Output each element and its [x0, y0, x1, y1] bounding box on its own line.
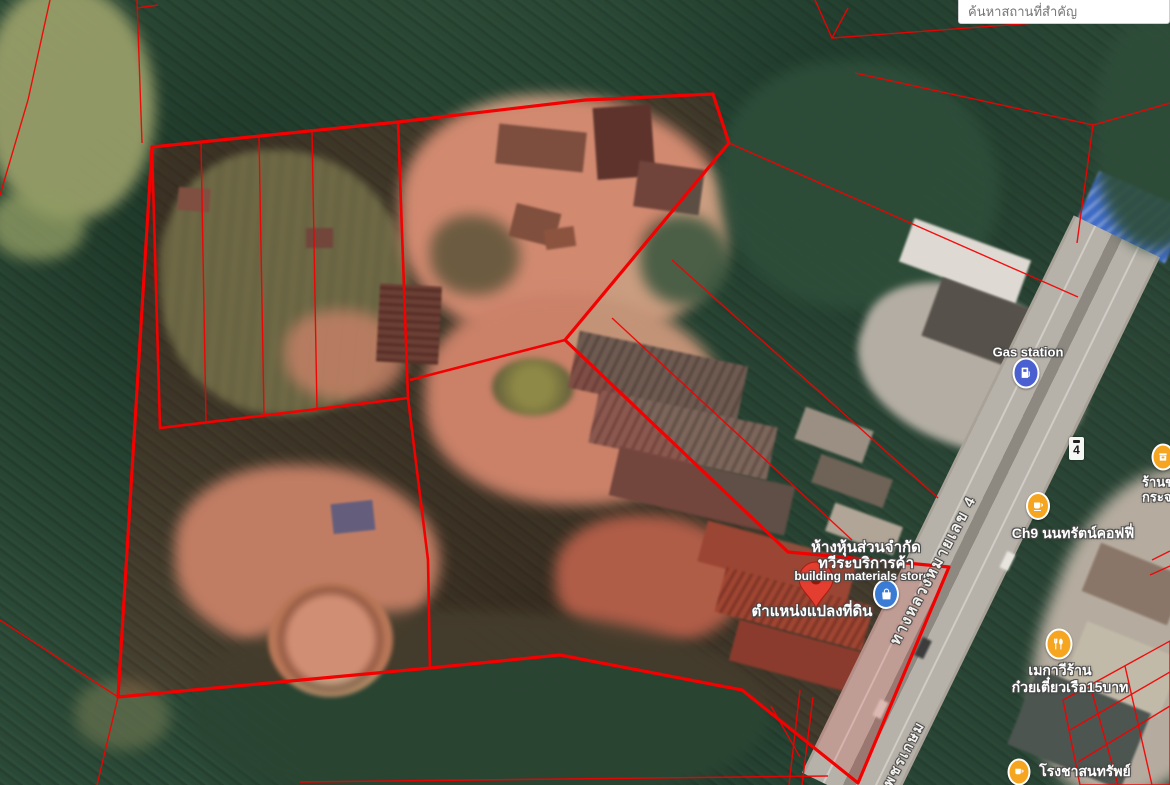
satellite-map-view[interactable]: Gas station 4 Ch9 นนทรัตน์คอฟฟี่ ห้างหุ้… [0, 0, 1170, 785]
noodle-shop-line2: ก๋วยเตี๋ยวเรือ15บาท [1012, 677, 1129, 699]
tea-house-label: โรงชาสนทรัพย์ [1039, 761, 1131, 783]
parcel-location-label: ตำแหน่งแปลงที่ดิน [752, 599, 873, 623]
main-parcel-outline[interactable] [118, 94, 949, 783]
cafe-icon[interactable] [1008, 761, 1031, 784]
parcel-boundaries-overlay [0, 0, 1170, 785]
route-4-shield: 4 [1069, 437, 1084, 460]
map-search-box[interactable] [958, 0, 1170, 24]
gas-station-label: Gas station [993, 345, 1064, 360]
store-icon[interactable] [873, 581, 899, 607]
coffee-shop-label: Ch9 นนทรัตน์คอฟฟี่ [1012, 523, 1135, 545]
search-input[interactable] [959, 0, 1169, 23]
edge-shop-line2: กระจก [1142, 487, 1170, 508]
store-category-label: building materials store [794, 569, 929, 583]
gas-pump-icon[interactable] [1013, 360, 1040, 387]
route-number: 4 [1073, 443, 1080, 457]
restaurant-pin-icon[interactable] [1046, 631, 1073, 658]
coffee-pin-icon[interactable] [1026, 494, 1050, 518]
edge-shop-icon[interactable] [1152, 446, 1170, 469]
